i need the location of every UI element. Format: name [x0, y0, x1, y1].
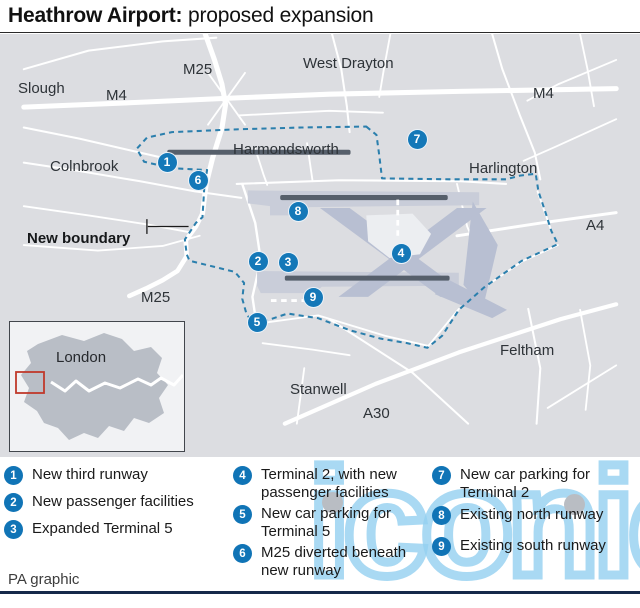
south-runway-bar: [285, 276, 450, 281]
map-marker-9: 9: [303, 287, 324, 308]
page-title-regular: proposed expansion: [182, 4, 373, 27]
map-label: Colnbrook: [50, 158, 118, 175]
map: London SloughM4M25West DraytonM4Harmonds…: [0, 34, 640, 457]
map-label: M25: [183, 61, 212, 78]
legend-label: New passenger facilities: [32, 493, 194, 511]
map-marker-2: 2: [248, 251, 269, 272]
map-label: New boundary: [27, 230, 130, 247]
map-marker-4: 4: [391, 243, 412, 264]
london-inset-graphics: [10, 322, 183, 450]
legend-item-5: 5New car parking for Terminal 5: [233, 505, 433, 541]
legend-number-badge: 7: [432, 466, 451, 485]
north-runway-strip: [248, 190, 479, 215]
road-minor: [548, 365, 616, 408]
road-minor: [580, 310, 590, 410]
legend-label: New car parking for Terminal 5: [261, 505, 429, 541]
legend-number-badge: 4: [233, 466, 252, 485]
map-label: Stanwell: [290, 381, 347, 398]
road-minor: [524, 119, 617, 161]
legend-number-badge: 3: [4, 520, 23, 539]
map-marker-3: 3: [278, 252, 299, 273]
bottom-rule: [0, 591, 640, 594]
legend-column-1: 1New third runway2New passenger faciliti…: [4, 466, 219, 547]
airport-footprint: [167, 150, 507, 318]
legend-item-7: 7New car parking for Terminal 2: [432, 466, 637, 502]
map-label: M25: [141, 289, 170, 306]
legend-column-3: 7New car parking for Terminal 28Existing…: [432, 466, 637, 556]
road-minor: [24, 206, 189, 232]
map-label: West Drayton: [303, 55, 394, 72]
legend-item-9: 9Existing south runway: [432, 537, 637, 556]
road-bath: [237, 180, 506, 184]
legend-item-4: 4Terminal 2, with new passenger faciliti…: [233, 466, 433, 502]
map-marker-7: 7: [407, 129, 428, 150]
road-minor: [239, 111, 383, 116]
map-label: Harlington: [469, 160, 537, 177]
map-label: A30: [363, 405, 390, 422]
legend-item-1: 1New third runway: [4, 466, 219, 485]
inset-london-label: London: [56, 349, 106, 366]
header: Heathrow Airport: proposed expansion: [0, 0, 640, 33]
road-minor: [257, 309, 459, 346]
page-title: Heathrow Airport: proposed expansion: [8, 4, 374, 28]
legend-label: M25 diverted beneath new runway: [261, 544, 429, 580]
road-minor: [24, 127, 172, 159]
legend-number-badge: 8: [432, 506, 451, 525]
credit: PA graphic: [8, 571, 79, 588]
map-marker-8: 8: [288, 201, 309, 222]
map-label: Feltham: [500, 342, 554, 359]
road-minor: [332, 34, 350, 132]
legend-item-2: 2New passenger facilities: [4, 493, 219, 512]
legend-number-badge: 9: [432, 537, 451, 556]
legend-item-3: 3Expanded Terminal 5: [4, 520, 219, 539]
map-label: Slough: [18, 80, 65, 97]
map-label: M4: [533, 85, 554, 102]
legend-label: Existing south runway: [460, 537, 606, 555]
road-minor: [329, 319, 468, 424]
map-marker-1: 1: [157, 152, 178, 173]
legend-number-badge: 2: [4, 493, 23, 512]
legend-label: New car parking for Terminal 2: [460, 466, 628, 502]
legend-number-badge: 6: [233, 544, 252, 563]
legend: 1New third runway2New passenger faciliti…: [0, 457, 640, 577]
legend-item-8: 8Existing north runway: [432, 506, 637, 525]
page-title-bold: Heathrow Airport:: [8, 4, 182, 27]
map-marker-5: 5: [247, 312, 268, 333]
legend-label: Terminal 2, with new passenger facilitie…: [261, 466, 429, 502]
london-inset-map: London: [9, 321, 185, 452]
road-minor: [263, 343, 350, 355]
map-label: M4: [106, 87, 127, 104]
map-label: Harmondsworth: [233, 141, 339, 158]
map-marker-6: 6: [188, 170, 209, 191]
map-label: A4: [586, 217, 604, 234]
legend-number-badge: 5: [233, 505, 252, 524]
legend-number-badge: 1: [4, 466, 23, 485]
legend-label: Existing north runway: [460, 506, 603, 524]
legend-item-6: 6M25 diverted beneath new runway: [233, 544, 433, 580]
legend-label: New third runway: [32, 466, 148, 484]
legend-label: Expanded Terminal 5: [32, 520, 173, 538]
legend-column-2: 4Terminal 2, with new passenger faciliti…: [233, 466, 433, 583]
north-runway-bar: [280, 195, 448, 200]
